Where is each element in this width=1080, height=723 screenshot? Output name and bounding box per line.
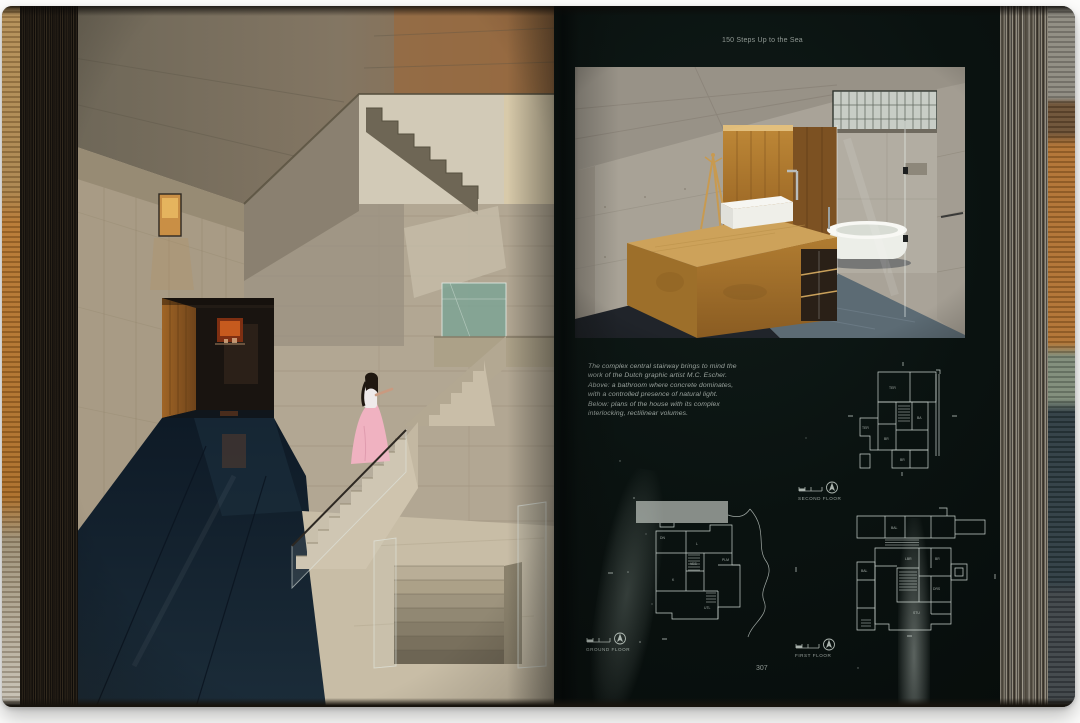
scale-bar-icon: [799, 487, 822, 491]
room-label: TER: [862, 426, 869, 430]
left-page: [74, 6, 556, 707]
glare-streak-vertical: [898, 518, 930, 707]
room-label: BR: [935, 557, 940, 561]
room-label: K: [672, 578, 675, 582]
floor-plan-second: TER BR BA TER BR: [840, 358, 1000, 480]
scale-bar-icon: [796, 644, 819, 648]
bath-vignette: [575, 67, 965, 338]
room-label: BAL: [861, 569, 868, 573]
right-page: 150 Steps Up to the Sea: [554, 6, 1004, 707]
fore-edge-pages-left: [20, 6, 78, 707]
room-label: BR: [884, 437, 889, 441]
room-label: BA: [917, 416, 922, 420]
vignette: [74, 6, 556, 707]
page-header: 150 Steps Up to the Sea: [722, 37, 822, 44]
plan-caption-glyphs: [798, 480, 842, 494]
plan-caption-second: SECOND FLOOR: [798, 480, 842, 501]
bathroom-photo: [575, 67, 965, 338]
room-label: BAL: [891, 526, 898, 530]
book-bottom-edge-shade: [2, 698, 1075, 707]
book-product-photo: 150 Steps Up to the Sea: [0, 0, 1080, 723]
fore-edge-pages-right: [1000, 6, 1048, 707]
caption-paragraph: The complex central stairway brings to m…: [588, 362, 758, 418]
room-label: BR: [900, 458, 905, 462]
room-label: DRS: [933, 587, 941, 591]
staircase-photo: [74, 6, 556, 707]
book-top-edge-shade: [2, 6, 1075, 16]
room-label: PLM: [722, 558, 729, 562]
room-label: UTL: [704, 606, 711, 610]
plan-caption-glyphs: [795, 637, 839, 651]
north-arrow-icon: [827, 482, 838, 493]
open-book: 150 Steps Up to the Sea: [2, 6, 1075, 707]
room-label: TER: [889, 386, 896, 390]
underlying-page-edge-right: [1048, 6, 1075, 707]
north-arrow-icon: [824, 639, 835, 650]
room-label: VES: [690, 562, 698, 566]
page-number: 307: [756, 665, 768, 672]
room-label: L: [696, 542, 698, 546]
plan-caption-first: FIRST FLOOR: [795, 637, 839, 658]
